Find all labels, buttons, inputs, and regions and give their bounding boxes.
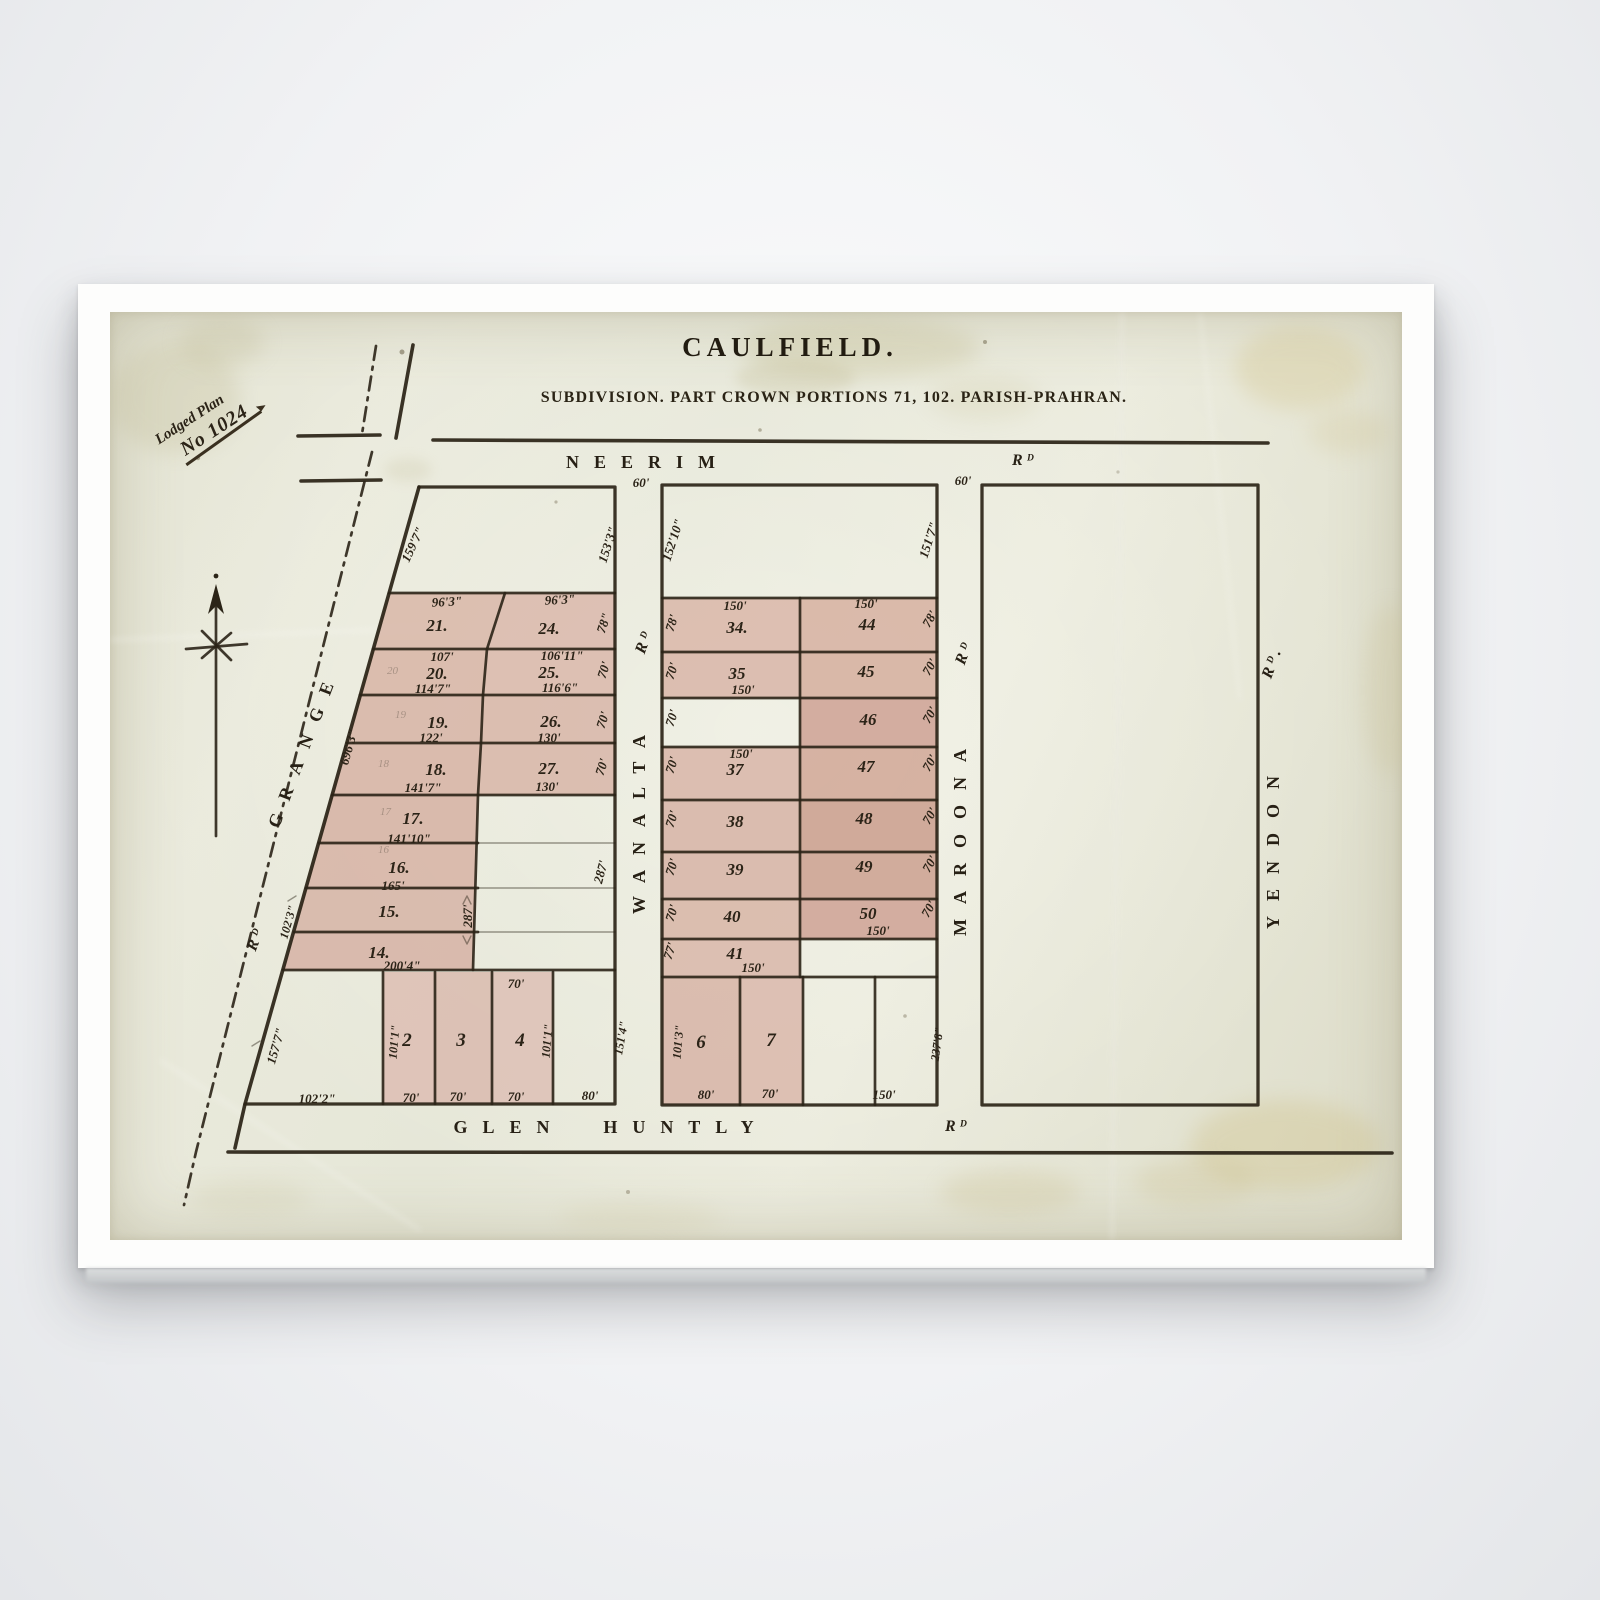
- dim-25-top: 106'11": [541, 648, 584, 663]
- wanalta-width-label: 60': [633, 475, 650, 490]
- road-yendon-label: YENDON: [1263, 761, 1283, 929]
- road-neerim-suffix: Rᴰ: [1011, 452, 1037, 469]
- lot-4-number: 4: [514, 1030, 525, 1051]
- lot-19: [347, 695, 483, 743]
- pencil-16: 16: [378, 844, 390, 856]
- dim-44-top: 150': [854, 596, 878, 611]
- lot-47-number: 47: [857, 757, 877, 776]
- road-wanalta-suffix: Rᴰ: [632, 626, 657, 657]
- dim-35-bottom: 150': [731, 682, 755, 697]
- dim-4-bottom: 70': [508, 1089, 525, 1104]
- road-yendon-suffix: Rᴰ.: [1258, 644, 1286, 682]
- road-grange-suffix: Rᴰ: [243, 923, 268, 954]
- lot-44-number: 44: [858, 615, 876, 634]
- map-subtitle: SUBDIVISION. PART CROWN PORTIONS 71, 102…: [541, 389, 1127, 406]
- lot-15-number: 15.: [378, 902, 399, 921]
- lot-2-number: 2: [401, 1030, 412, 1051]
- lot-18-number: 18.: [425, 760, 446, 779]
- road-maroona-suffix: Rᴰ: [952, 637, 977, 668]
- lot-39-number: 39: [726, 860, 745, 879]
- lot-50-number: 50: [860, 904, 878, 923]
- neerim-north-line-west: [298, 435, 380, 436]
- lot-37-number: 37: [726, 760, 746, 779]
- dim-26-bottom: 130': [537, 730, 561, 745]
- dim-7-bottom: 70': [762, 1086, 779, 1101]
- lot-6-number: 6: [696, 1032, 706, 1053]
- dim-50-bottom: 150': [866, 923, 890, 938]
- dim-b-bottom: 150': [872, 1087, 896, 1102]
- dim-6-bottom: 80': [698, 1087, 715, 1102]
- dim-3-bottom: 70': [450, 1089, 467, 1104]
- dim-21-top: 96'3": [431, 593, 462, 610]
- lot-16-number: 16.: [388, 858, 409, 877]
- lot-49-number: 49: [855, 857, 874, 876]
- glen-huntly-south-line: [228, 1152, 1392, 1153]
- dim-19-bottom: 122': [419, 730, 443, 745]
- dim-24-top: 96'3": [544, 591, 575, 608]
- road-wanalta-label: WANALTA: [629, 720, 649, 914]
- dim-34-top: 150': [723, 598, 747, 613]
- dim-strip-east: 287': [590, 858, 611, 886]
- maroona-width-label: 60': [955, 473, 972, 488]
- dim-25-bottom: 116'6": [542, 680, 578, 695]
- dim-2-side: 101'1": [386, 1024, 403, 1059]
- dim-16-bottom: 165': [381, 878, 405, 893]
- lot-45-number: 45: [857, 662, 876, 681]
- lot-27-number: 27.: [537, 759, 559, 778]
- grange-east-line-upper: [396, 345, 413, 438]
- dim-4-top: 70': [508, 976, 525, 991]
- map-paper: Lodged Plan No 1024 CAULFIELD. SUBDIVISI…: [110, 312, 1402, 1240]
- map-poster: Lodged Plan No 1024 CAULFIELD. SUBDIVISI…: [78, 284, 1434, 1268]
- neerim-north-line: [433, 440, 1268, 443]
- dim-17-bottom: 141'10": [387, 831, 430, 846]
- road-glen-label: GLEN: [453, 1117, 564, 1137]
- dim-2-bottom: 70': [403, 1090, 420, 1105]
- pencil-20: 20: [387, 665, 399, 677]
- lot-46-number: 46: [859, 710, 878, 729]
- dim-6-side: 101'3": [670, 1024, 687, 1059]
- dim-41-bottom: 150': [741, 960, 765, 975]
- lot-24-number: 24.: [537, 619, 559, 638]
- road-glen-huntly-suffix: Rᴰ: [944, 1118, 970, 1135]
- lot-26-number: 26.: [539, 712, 561, 731]
- dim-strip-west: 287': [460, 904, 475, 929]
- lot-7-number: 7: [766, 1030, 777, 1051]
- pencil-18: 18: [378, 758, 390, 770]
- lot-34-number: 34.: [725, 618, 747, 637]
- dim-b-se-side: 237'8": [928, 1026, 947, 1063]
- page-background: Lodged Plan No 1024 CAULFIELD. SUBDIVISI…: [0, 0, 1600, 1600]
- lot-35-number: 35: [728, 664, 747, 683]
- dim-18-bottom: 141'7": [405, 780, 442, 795]
- lot-48-number: 48: [855, 809, 874, 828]
- dim-37-top: 150': [729, 746, 753, 761]
- road-neerim-label: NEERIM: [566, 452, 730, 472]
- dim-14-bottom: 200'4": [383, 958, 421, 973]
- dim-20-top: 107': [430, 649, 454, 664]
- map-title: CAULFIELD.: [682, 332, 898, 362]
- pencil-17: 17: [380, 806, 392, 818]
- subdivision-map: Lodged Plan No 1024 CAULFIELD. SUBDIVISI…: [110, 312, 1402, 1240]
- grange-west-dash-line-upper: [362, 346, 376, 434]
- dim-a5-bottom: 80': [582, 1088, 599, 1103]
- dim-corner-bottom: 102'2": [299, 1091, 336, 1106]
- dim-27-bottom: 130': [535, 779, 559, 794]
- dim-4-side: 101'1": [539, 1023, 556, 1058]
- dim-b-r3-west: 70': [662, 707, 682, 728]
- lot-40-number: 40: [723, 907, 742, 926]
- lot-38-number: 38: [726, 812, 745, 831]
- road-huntly-label: HUNTLY: [603, 1117, 768, 1137]
- lot-21-number: 21.: [425, 616, 447, 635]
- dim-20-bottom: 114'7": [415, 681, 451, 696]
- lot-17-number: 17.: [402, 809, 423, 828]
- north-arrow: [186, 574, 247, 836]
- road-maroona-label: MAROONA: [950, 734, 970, 936]
- neerim-south-line-west: [301, 480, 381, 481]
- lot-3-number: 3: [455, 1030, 466, 1051]
- pencil-19: 19: [395, 709, 407, 721]
